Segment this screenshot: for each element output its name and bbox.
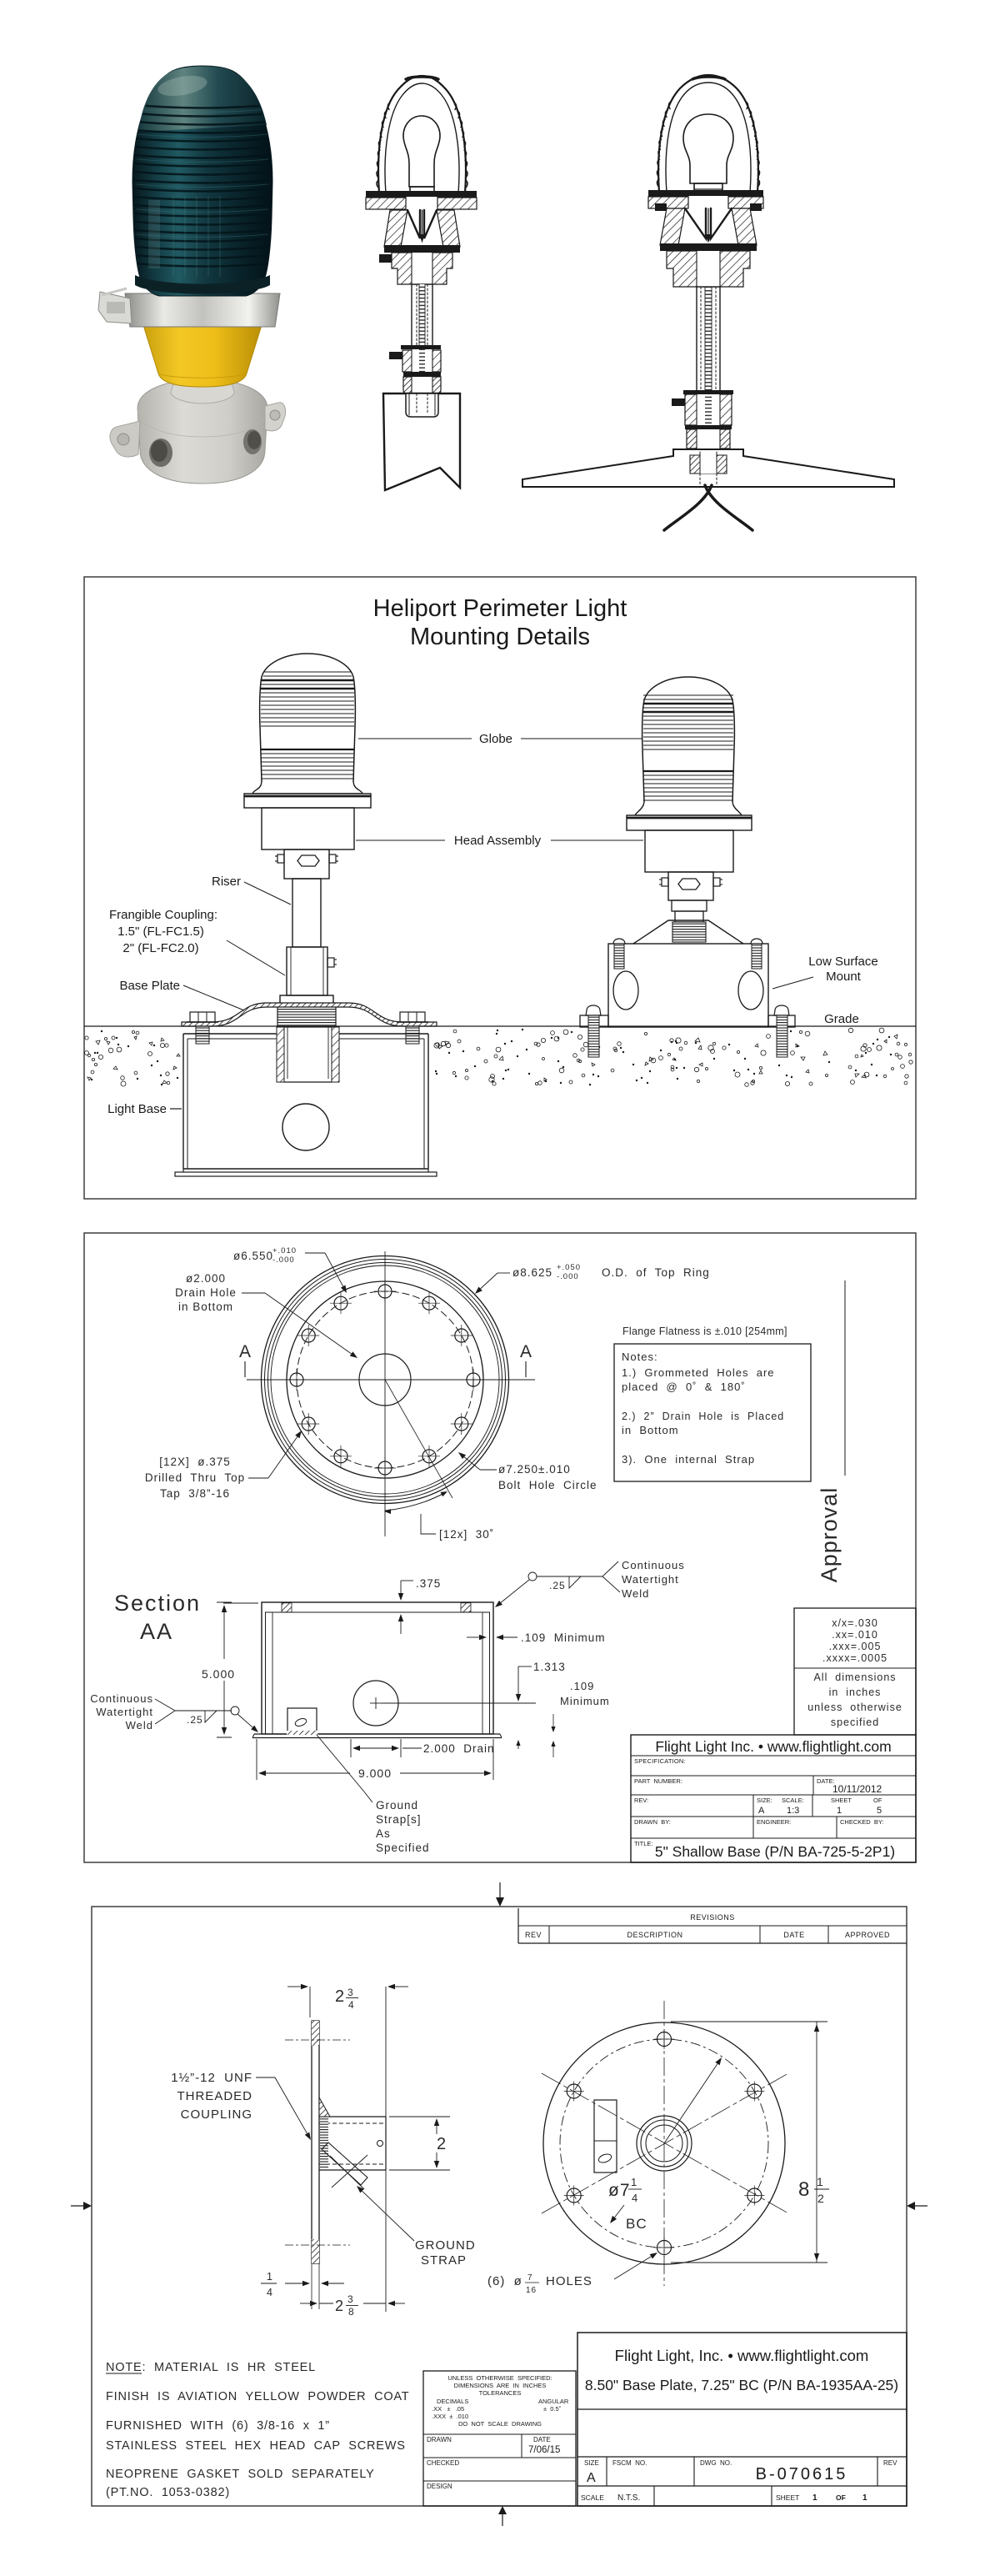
svg-text:1: 1 xyxy=(837,1806,842,1816)
svg-text:1: 1 xyxy=(862,2493,867,2503)
svg-text:ANGULAR: ANGULAR xyxy=(538,2398,569,2405)
svg-text:2" (FL-FC2.0): 2" (FL-FC2.0) xyxy=(122,941,198,955)
svg-text:Weld: Weld xyxy=(622,1587,649,1600)
svg-text:OF: OF xyxy=(836,2493,846,2502)
svg-text:Low Surface: Low Surface xyxy=(808,955,877,969)
svg-text:Watertight: Watertight xyxy=(622,1573,679,1586)
svg-text:Flight Light, Inc. • www.fligh: Flight Light, Inc. • www.flightlight.com xyxy=(615,2347,869,2364)
svg-text:ENGINEER:: ENGINEER: xyxy=(757,1818,791,1826)
svg-text:.25: .25 xyxy=(549,1580,566,1591)
svg-text:FURNISHED WITH (6) 3/8-16: FURNISHED WITH (6) 3/8-16 x 1” xyxy=(106,2419,330,2433)
svg-text:SHEET: SHEET xyxy=(831,1797,852,1804)
svg-text:UNLESS OTHERWISE SPECIFIED:: UNLESS OTHERWISE SPECIFIED: xyxy=(447,2374,552,2382)
svg-text:NEOPRENE GASKET SOLD SEPARA: NEOPRENE GASKET SOLD SEPARATELY xyxy=(106,2468,375,2481)
svg-text:5: 5 xyxy=(877,1806,882,1816)
svg-text:4: 4 xyxy=(348,1999,355,2011)
svg-text:Grade: Grade xyxy=(824,1012,859,1026)
svg-text:1: 1 xyxy=(817,2175,824,2188)
svg-text:1.5" (FL-FC1.5): 1.5" (FL-FC1.5) xyxy=(117,925,204,939)
svg-text:.375: .375 xyxy=(416,1577,441,1590)
svg-text:8: 8 xyxy=(798,2178,810,2201)
svg-text:(PT.NO. 1053-0382): (PT.NO. 1053-0382) xyxy=(106,2486,230,2499)
svg-text:A: A xyxy=(587,2471,596,2485)
svg-text:7: 7 xyxy=(527,2273,533,2283)
svg-text:3: 3 xyxy=(347,1987,354,1998)
svg-text:CHECKED BY:: CHECKED BY: xyxy=(840,1818,884,1826)
svg-text:SHEET: SHEET xyxy=(776,2493,799,2502)
svg-text:ø6.550: ø6.550 xyxy=(233,1250,273,1262)
svg-text:Approval: Approval xyxy=(817,1487,842,1583)
svg-text:REV:: REV: xyxy=(634,1797,648,1804)
svg-text:DESIGN: DESIGN xyxy=(427,2483,452,2490)
svg-text:8: 8 xyxy=(348,2306,355,2318)
svg-text:2.) 2” Drain Hole is Plac: 2.) 2” Drain Hole is Placed xyxy=(622,1411,784,1422)
svg-text:.XXX ± .010: .XXX ± .010 xyxy=(432,2413,468,2420)
svg-text:Drain Hole: Drain Hole xyxy=(175,1286,237,1299)
svg-text:.XX ± .05: .XX ± .05 xyxy=(432,2405,464,2413)
svg-text:Head Assembly: Head Assembly xyxy=(454,834,542,848)
svg-text:DRAWN: DRAWN xyxy=(427,2436,452,2443)
svg-text:O.D. of Top Ring: O.D. of Top Ring xyxy=(602,1266,710,1279)
svg-text:placed @ 0˚ & 180˚: placed @ 0˚ & 180˚ xyxy=(622,1381,746,1393)
svg-text:Mount: Mount xyxy=(826,970,862,984)
svg-text:REV: REV xyxy=(525,1931,542,1939)
svg-text:PART NUMBER:: PART NUMBER: xyxy=(634,1777,682,1785)
svg-text:FINISH IS AVIATION YELLOW: FINISH IS AVIATION YELLOW POWDER COAT xyxy=(106,2390,409,2403)
svg-text:SIZE:: SIZE: xyxy=(757,1797,772,1804)
svg-text:A: A xyxy=(520,1342,532,1361)
svg-text:5" Shallow Base (P/N BA-725-5-: 5" Shallow Base (P/N BA-725-5-2P1) xyxy=(655,1843,895,1860)
svg-text:Section: Section xyxy=(114,1591,201,1616)
svg-text:CHECKED: CHECKED xyxy=(427,2459,459,2467)
svg-text:A: A xyxy=(758,1806,765,1816)
svg-text:DATE: DATE xyxy=(533,2436,551,2443)
svg-text:[12X] ø.375: [12X] ø.375 xyxy=(159,1456,231,1468)
svg-text:TOLERANCES: TOLERANCES xyxy=(479,2389,522,2397)
svg-text:Tap 3/8”-16: Tap 3/8”-16 xyxy=(160,1487,230,1500)
svg-text:DIMENSIONS ARE IN INCHES: DIMENSIONS ARE IN INCHES xyxy=(454,2382,547,2389)
svg-text:in Bottom: in Bottom xyxy=(622,1424,679,1436)
svg-text:(6) ø: (6) ø xyxy=(487,2274,522,2288)
svg-text:ø8.625: ø8.625 xyxy=(512,1266,552,1279)
svg-text:1.) Grommeted Holes are: 1.) Grommeted Holes are xyxy=(622,1366,775,1379)
svg-text:As: As xyxy=(376,1827,391,1840)
svg-text:Heliport Perimeter Light: Heliport Perimeter Light xyxy=(373,595,627,622)
svg-text:-.000: -.000 xyxy=(272,1255,295,1265)
svg-text:DO NOT SCALE DRAWING: DO NOT SCALE DRAWING xyxy=(458,2420,542,2428)
svg-text:Mounting Details: Mounting Details xyxy=(410,624,590,650)
svg-text:COUPLING: COUPLING xyxy=(181,2107,252,2122)
svg-text:DATE: DATE xyxy=(783,1931,804,1939)
svg-text:STAINLESS STEEL HEX HEAD C: STAINLESS STEEL HEX HEAD CAP SCREWS xyxy=(106,2439,406,2453)
svg-text:N.T.S.: N.T.S. xyxy=(617,2493,640,2503)
svg-text:Ground: Ground xyxy=(376,1799,418,1812)
svg-text:DWG NO.: DWG NO. xyxy=(700,2459,732,2467)
svg-text:4: 4 xyxy=(632,2192,638,2204)
svg-text:specified: specified xyxy=(831,1716,879,1728)
svg-text:TITLE:: TITLE: xyxy=(634,1840,653,1847)
svg-text:Riser: Riser xyxy=(212,875,241,889)
svg-text:A: A xyxy=(239,1342,251,1361)
svg-text:HOLES: HOLES xyxy=(546,2274,592,2288)
svg-text:.xx=.010: .xx=.010 xyxy=(832,1629,878,1641)
svg-text:THREADED: THREADED xyxy=(177,2089,252,2103)
svg-text:Minimum: Minimum xyxy=(560,1695,610,1707)
svg-text:NOTE: MATERIAL IS HR STEEL: NOTE: MATERIAL IS HR STEEL xyxy=(106,2361,316,2374)
svg-text:10/11/2012: 10/11/2012 xyxy=(832,1783,882,1795)
svg-text:4: 4 xyxy=(267,2287,273,2298)
svg-text:ø7.250±.010: ø7.250±.010 xyxy=(498,1463,571,1476)
svg-text:Bolt Hole Circle: Bolt Hole Circle xyxy=(498,1479,597,1491)
svg-text:Strap[s]: Strap[s] xyxy=(376,1813,422,1826)
svg-text:ø7: ø7 xyxy=(608,2181,631,2200)
svg-text:2: 2 xyxy=(437,2135,447,2153)
svg-text:OF: OF xyxy=(873,1797,882,1804)
svg-text:[12x] 30˚: [12x] 30˚ xyxy=(439,1528,494,1541)
svg-text:+.050: +.050 xyxy=(557,1263,581,1272)
svg-text:SIZE: SIZE xyxy=(584,2459,599,2467)
svg-text:REVISIONS: REVISIONS xyxy=(690,1913,735,1922)
svg-text:B-070615: B-070615 xyxy=(756,2465,848,2483)
svg-text:DECIMALS: DECIMALS xyxy=(437,2398,468,2405)
svg-text:Continuous: Continuous xyxy=(90,1692,153,1705)
svg-text:8.50" Base Plate, 7.25" BC (P/: 8.50" Base Plate, 7.25" BC (P/N BA-1935A… xyxy=(585,2377,898,2393)
svg-text:Flange Flatness is ±.010 [254m: Flange Flatness is ±.010 [254mm] xyxy=(622,1326,787,1337)
svg-text:Watertight: Watertight xyxy=(96,1706,153,1718)
svg-text:3: 3 xyxy=(347,2293,354,2305)
svg-text:Globe: Globe xyxy=(479,732,512,746)
svg-text:1: 1 xyxy=(812,2493,817,2503)
svg-text:DRAWN BY:: DRAWN BY: xyxy=(634,1818,671,1826)
svg-text:AA: AA xyxy=(140,1619,173,1644)
svg-text:Flight Light Inc. • www.flight: Flight Light Inc. • www.flightlight.com xyxy=(655,1738,891,1755)
svg-text:APPROVED: APPROVED xyxy=(845,1931,890,1939)
svg-text:unless otherwise: unless otherwise xyxy=(807,1701,902,1713)
svg-text:.25: .25 xyxy=(187,1714,203,1726)
svg-text:in Bottom: in Bottom xyxy=(178,1301,233,1313)
svg-text:DESCRIPTION: DESCRIPTION xyxy=(627,1931,682,1939)
svg-text:ø2.000: ø2.000 xyxy=(186,1272,226,1285)
svg-text:1:3: 1:3 xyxy=(787,1806,799,1816)
svg-text:+.010: +.010 xyxy=(272,1246,297,1255)
svg-text:2: 2 xyxy=(335,2298,344,2314)
svg-text:1.313: 1.313 xyxy=(533,1661,566,1673)
svg-text:.109 Minimum: .109 Minimum xyxy=(521,1631,606,1644)
svg-text:FSCM NO.: FSCM NO. xyxy=(612,2459,647,2467)
svg-text:SPECIFICATION:: SPECIFICATION: xyxy=(634,1757,686,1765)
svg-text:GROUND: GROUND xyxy=(415,2238,476,2253)
svg-text:9.000: 9.000 xyxy=(358,1767,392,1780)
svg-text:.xxx=.005: .xxx=.005 xyxy=(829,1641,882,1652)
svg-text:3). One internal Strap: 3). One internal Strap xyxy=(622,1453,755,1466)
svg-text:Continuous: Continuous xyxy=(622,1559,685,1571)
svg-text:REV: REV xyxy=(883,2459,897,2467)
svg-text:STRAP: STRAP xyxy=(421,2253,467,2268)
svg-text:x/x=.030: x/x=.030 xyxy=(832,1617,878,1629)
svg-text:SCALE: SCALE xyxy=(581,2493,604,2502)
svg-text:2: 2 xyxy=(335,1987,345,2006)
svg-text:2: 2 xyxy=(817,2192,825,2205)
svg-text:16: 16 xyxy=(526,2286,537,2295)
svg-text:Specified: Specified xyxy=(376,1842,430,1854)
svg-text:Base Plate: Base Plate xyxy=(119,979,180,993)
svg-text:5.000: 5.000 xyxy=(202,1667,235,1681)
svg-text:± 0.5˚: ± 0.5˚ xyxy=(543,2405,561,2413)
svg-text:Notes:: Notes: xyxy=(622,1351,658,1363)
svg-text:.109: .109 xyxy=(570,1680,594,1692)
svg-text:SCALE:: SCALE: xyxy=(782,1797,804,1804)
svg-text:1: 1 xyxy=(631,2176,637,2188)
svg-text:Weld: Weld xyxy=(126,1719,153,1732)
svg-text:Frangible Coupling:: Frangible Coupling: xyxy=(109,908,217,922)
svg-text:2.000 Drain: 2.000 Drain xyxy=(423,1742,495,1755)
svg-text:7/06/15: 7/06/15 xyxy=(528,2445,560,2455)
svg-text:.xxxx=.0005: .xxxx=.0005 xyxy=(822,1652,887,1664)
svg-text:-.000: -.000 xyxy=(557,1272,579,1281)
svg-text:Drilled Thru Top: Drilled Thru Top xyxy=(145,1471,245,1484)
svg-text:Light Base: Light Base xyxy=(107,1102,167,1116)
svg-text:1½”-12 UNF: 1½”-12 UNF xyxy=(171,2071,252,2085)
svg-text:BC: BC xyxy=(626,2216,647,2232)
svg-text:1: 1 xyxy=(267,2271,273,2283)
svg-text:All dimensions: All dimensions xyxy=(813,1671,896,1683)
svg-text:in inches: in inches xyxy=(829,1686,882,1698)
